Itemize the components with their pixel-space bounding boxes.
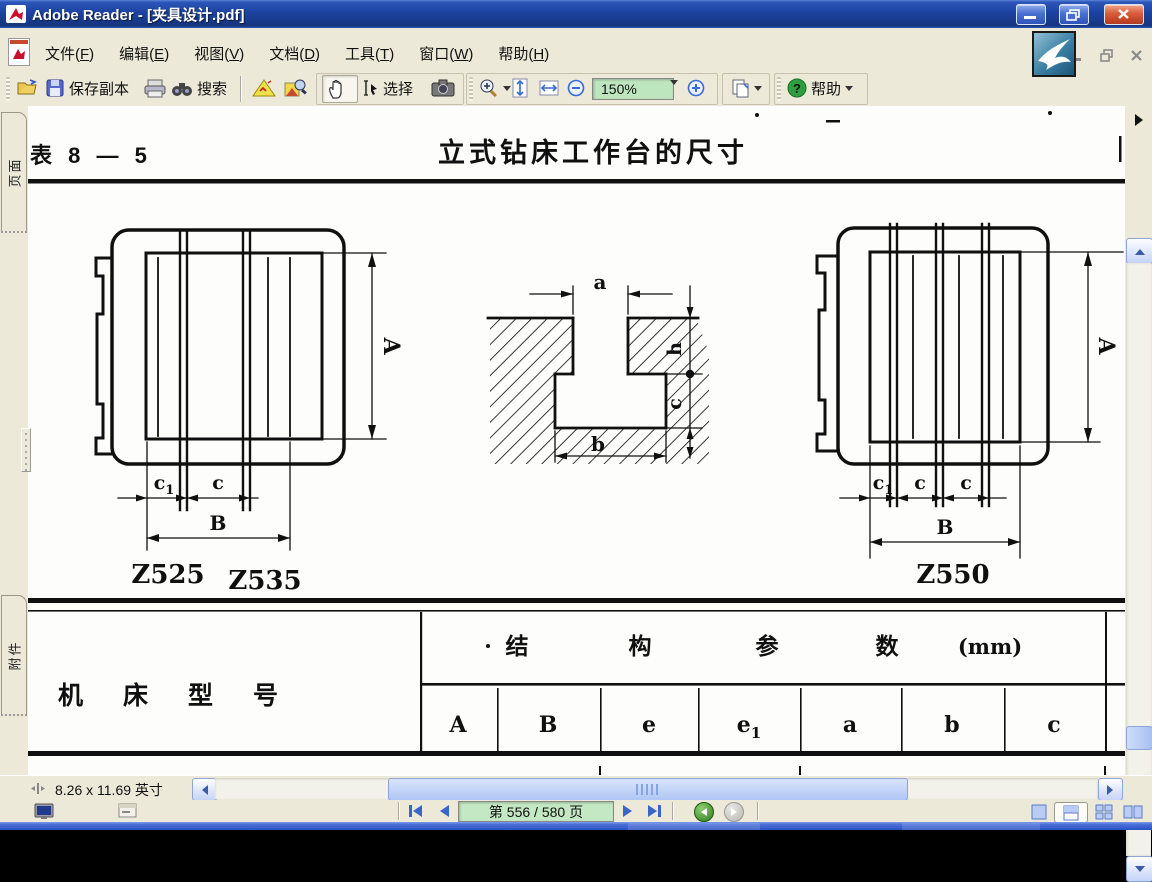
fit-width-icon [539,79,559,97]
scroll-down-button[interactable] [1126,856,1152,882]
sign-button[interactable] [248,75,280,101]
child-close-button[interactable] [1128,48,1146,64]
column-header-e1: e1 [737,712,761,742]
engineering-drawing: 表 8 — 5 立式钻床工作台的尺寸 A [28,106,1125,775]
nav-separator [398,802,399,820]
continuous-view-button[interactable] [1054,802,1088,823]
toolbar-overflow-button[interactable] [1125,106,1152,133]
menu-help[interactable]: 帮助(H) [495,42,552,65]
table-row-header: 机床型号 [58,681,318,710]
taskbar-button [902,823,1040,830]
close-button[interactable] [1104,4,1144,25]
save-copy-button[interactable]: 保存副本 [42,75,132,101]
group-header-char: 结 [506,633,529,659]
group-header-char: 数 [876,633,900,659]
hand-icon [326,78,348,100]
dim-label-A: A [378,336,404,355]
column-header-A: A [448,712,467,738]
column-header-B: B [539,712,558,738]
zoom-in-button[interactable] [684,75,710,101]
pages-tab[interactable]: 页面 [1,112,27,233]
attachments-tab-label: 附件 [5,640,24,670]
hscroll-left-button[interactable] [192,778,217,801]
pages-tab-label: 页面 [5,157,24,187]
vertical-scrollbar[interactable] [1125,106,1152,775]
title-bar: Adobe Reader - [夹具设计.pdf] [0,0,1152,28]
dim-label-A: A [1093,336,1119,355]
print-button[interactable] [140,75,170,101]
next-page-button[interactable] [618,802,638,820]
child-restore-button[interactable] [1098,48,1116,64]
vertical-scroll-thumb[interactable] [1126,726,1152,750]
status-bar: 8.26 x 11.69 英寸 [0,775,1152,801]
select-tool-button[interactable]: 选择 [356,75,416,101]
help-button[interactable]: ? 帮助 [784,75,856,101]
dim-label-c: c [212,472,224,494]
page-size-label: 8.26 x 11.69 英寸 [55,780,163,800]
zoom-level-field[interactable]: 150% [592,78,674,100]
page-display-dropdown-arrow [754,86,762,95]
fit-height-icon [511,77,529,99]
previous-view-button[interactable] [694,802,714,822]
t-slot-section-drawing: a b h c [488,270,709,464]
right-worktable-drawing: c1 c c B A Z550 [817,224,1123,590]
zoom-group-grip[interactable] [469,77,473,101]
nav-separator [672,802,673,820]
column-header-e: e [642,712,656,738]
adobe-reader-logo-icon [6,5,26,23]
page-title: 立式钻床工作台的尺寸 [438,137,748,168]
zoom-out-button[interactable] [564,75,590,101]
help-dropdown-arrow [845,86,853,95]
model-label-z550: Z550 [916,560,989,590]
scan-speck [486,644,490,648]
dim-label-c: c [914,472,926,494]
question-circle-icon: ? [787,78,807,98]
column-header-a: a [843,712,857,738]
overflow-arrow-icon [1135,114,1149,126]
scanned-pdf-page: 表 8 — 5 立式钻床工作台的尺寸 A [28,106,1125,775]
plus-circle-icon [687,79,705,97]
dim-label-c1: c1 [154,472,175,498]
next-view-button[interactable] [724,802,744,822]
thumb-grip [636,784,658,795]
hscroll-right-button[interactable] [1098,778,1123,801]
facing-view-button[interactable] [1120,802,1146,821]
vertical-scroll-track[interactable] [1126,263,1151,856]
open-folder-icon [16,78,40,98]
sign-triangle-icon [251,77,277,99]
menu-bar: 文件(F) 编辑(E) 视图(V) 文档(D) 工具(T) 窗口(W) 帮助(H… [0,28,1152,73]
dim-label-B: B [937,515,954,539]
column-header-c: c [1047,712,1060,738]
group-header-char: 参 [756,633,779,659]
parameter-table: 结 构 参 数 (mm) 机床型号 A B e e1 a b c [28,598,1125,775]
continuous-facing-view-button[interactable] [1092,802,1116,821]
minus-circle-icon [567,79,585,97]
dim-label-c: c [960,472,972,494]
zoom-level-value: 150% [601,81,637,97]
page-number-field[interactable]: 第 556 / 580 页 [458,801,614,822]
dim-label-B: B [210,511,227,535]
search-button[interactable]: 搜索 [168,75,230,101]
pane-splitter-handle[interactable] [21,428,31,472]
windows-taskbar[interactable] [0,822,1152,830]
dim-label-a: a [594,270,607,294]
previous-page-button[interactable] [434,802,454,820]
menu-tools[interactable]: 工具(T) [342,42,397,65]
left-worktable-drawing: A c1 c B Z525 Z535 [96,230,404,596]
camera-icon [431,79,455,97]
menu-window[interactable]: 窗口(W) [416,42,476,65]
horizontal-scroll-thumb[interactable] [388,778,908,801]
group-header-unit: (mm) [958,634,1022,659]
last-page-button[interactable] [644,802,664,820]
group-header-char: 构 [629,633,652,659]
toolbar: 保存副本 搜索 选择 150% [0,72,1152,107]
scan-speck [1048,111,1052,115]
menu-view[interactable]: 视图(V) [191,42,247,65]
snapshot-button[interactable] [428,75,462,101]
picture-tasks-button[interactable] [280,75,312,101]
window-mode-icon[interactable] [118,803,138,824]
table-number: 表 8 — 5 [30,143,152,168]
toolbar-grip[interactable] [6,77,10,101]
menu-file[interactable]: 文件(F) [42,42,97,65]
pages-icon [730,78,750,98]
scan-speck [755,113,759,117]
bottom-toolbar: 第 556 / 580 页 [0,800,1152,822]
scan-speck [826,120,840,123]
restore-button[interactable] [1059,4,1089,25]
nav-separator [757,802,758,820]
floppy-icon [45,78,65,98]
scan-speck [1119,136,1122,162]
header-rule [28,179,1125,184]
minimize-button[interactable] [1016,4,1046,25]
fit-page-button[interactable] [508,75,536,101]
taskbar-button [628,823,760,830]
picture-tasks-icon [283,77,309,99]
fit-width-button[interactable] [536,75,564,101]
page-indicator: 第 556 / 580 页 [489,802,583,822]
menu-items: 文件(F) 编辑(E) 视图(V) 文档(D) 工具(T) 窗口(W) 帮助(H… [42,42,552,65]
open-button[interactable] [13,75,43,101]
binoculars-icon [171,79,193,97]
scroll-up-button[interactable] [1126,238,1152,264]
ibeam-cursor-icon [359,78,379,98]
dim-label-c-depth: c [664,398,686,410]
single-page-view-button[interactable] [1028,802,1050,821]
dim-label-b: b [591,432,605,456]
help-group-grip[interactable] [777,77,781,101]
svg-text:?: ? [793,81,801,96]
printer-icon [143,78,167,98]
window-title: Adobe Reader - [夹具设计.pdf] [32,4,245,25]
back-arrow-icon [697,808,707,816]
menu-edit[interactable]: 编辑(E) [116,42,172,65]
model-label-z525: Z525 [131,560,204,590]
first-page-button[interactable] [406,802,426,820]
column-header-b: b [944,712,959,738]
zoom-level-dropdown-arrow[interactable] [670,85,678,103]
pdf-document-icon [8,38,30,66]
attachments-tab[interactable]: 附件 [1,595,27,716]
swallow-logo-icon[interactable] [1032,31,1076,77]
hand-tool-button[interactable] [322,75,358,103]
model-label-z535: Z535 [228,566,301,596]
menu-document[interactable]: 文档(D) [266,42,323,65]
page-display-button[interactable] [727,75,765,101]
forward-arrow-icon [731,808,741,816]
toolbar-separator [240,76,241,102]
dim-label-h: h [664,342,686,356]
magnifier-plus-icon [479,78,499,98]
status-splitter-icon[interactable] [30,782,46,798]
